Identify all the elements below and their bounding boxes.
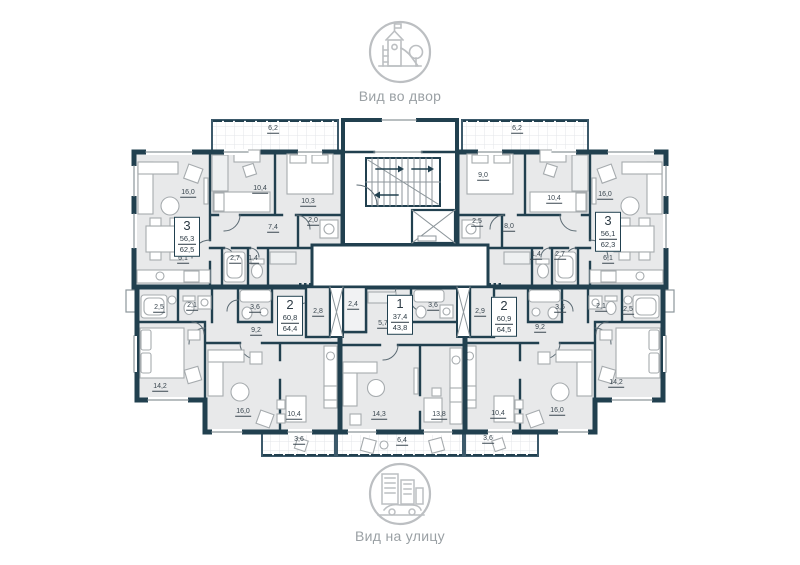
room-area-label: 3,6 (427, 302, 439, 311)
room-area-label: 1,4 (247, 255, 259, 264)
street-view-caption: Вид на улицу (0, 528, 800, 544)
apartment-info-box-bottom-right-2-room[interactable]: 260,964,5 (491, 297, 517, 337)
room-area-label: 2,7 (554, 251, 566, 260)
room-area-label: 9,0 (477, 172, 489, 181)
apartment-living-area: 56,3 (178, 234, 196, 245)
room-area-label: 6,2 (267, 125, 279, 134)
apartment-info-box-top-right-3-room[interactable]: 356,162,3 (595, 212, 621, 252)
room-area-label: 16,0 (549, 407, 565, 416)
room-area-label: 10,4 (490, 410, 506, 419)
room-area-label: 10,3 (300, 198, 316, 207)
apartment-rooms-count: 3 (599, 214, 617, 229)
room-area-label: 13,8 (431, 411, 447, 420)
room-area-label: 16,0 (235, 408, 251, 417)
room-area-label: 8,0 (503, 223, 515, 232)
apartment-living-area: 60,9 (495, 314, 513, 325)
apartment-total-area: 64,5 (495, 324, 513, 334)
room-area-label: 2,5 (153, 304, 165, 313)
courtyard-view-caption: Вид во двор (0, 88, 800, 104)
apartment-total-area: 43,8 (391, 322, 409, 332)
apartment-total-area: 62,5 (178, 244, 196, 254)
apartment-info-box-top-left-3-room[interactable]: 356,362,5 (174, 217, 200, 257)
room-area-label: 2,1 (186, 302, 198, 311)
room-area-label: 3,6 (482, 435, 494, 444)
apartment-total-area: 64,4 (281, 323, 299, 333)
room-area-label: 2,5 (471, 218, 483, 227)
room-area-label: 3,6 (554, 304, 566, 313)
label-layer: 6,210,410,316,07,42,02,71,46,16,29,010,4… (0, 0, 800, 565)
room-area-label: 2,4 (347, 301, 359, 310)
apartment-rooms-count: 2 (495, 299, 513, 314)
room-area-label: 16,0 (597, 191, 613, 200)
apartment-rooms-count: 2 (281, 298, 299, 313)
apartment-living-area: 60,8 (281, 313, 299, 324)
room-area-label: 9,2 (250, 327, 262, 336)
apartment-rooms-count: 1 (391, 297, 409, 312)
room-area-label: 6,1 (602, 255, 614, 264)
apartment-info-box-bottom-left-2-room[interactable]: 260,864,4 (277, 296, 303, 336)
room-area-label: 2,5 (622, 306, 634, 315)
room-area-label: 14,2 (608, 379, 624, 388)
room-area-label: 9,2 (534, 324, 546, 333)
apartment-rooms-count: 3 (178, 219, 196, 234)
room-area-label: 10,4 (252, 185, 268, 194)
room-area-label: 3,6 (293, 436, 305, 445)
room-area-label: 16,0 (180, 189, 196, 198)
floor-plan-page: 6,210,410,316,07,42,02,71,46,16,29,010,4… (0, 0, 800, 565)
room-area-label: 14,3 (371, 411, 387, 420)
apartment-living-area: 37,4 (391, 312, 409, 323)
room-area-label: 2,7 (229, 255, 241, 264)
apartment-info-box-center-1-room[interactable]: 137,443,8 (387, 295, 413, 335)
room-area-label: 6,4 (396, 437, 408, 446)
apartment-living-area: 56,1 (599, 229, 617, 240)
room-area-label: 3,6 (249, 304, 261, 313)
room-area-label: 2,8 (312, 308, 324, 317)
room-area-label: 1,4 (530, 251, 542, 260)
apartment-total-area: 62,3 (599, 239, 617, 249)
room-area-label: 6,2 (511, 125, 523, 134)
room-area-label: 7,4 (267, 224, 279, 233)
room-area-label: 2,0 (307, 217, 319, 226)
room-area-label: 2,1 (595, 303, 607, 312)
room-area-label: 10,4 (546, 195, 562, 204)
room-area-label: 2,9 (474, 308, 486, 317)
room-area-label: 14,2 (152, 383, 168, 392)
room-area-label: 10,4 (286, 411, 302, 420)
